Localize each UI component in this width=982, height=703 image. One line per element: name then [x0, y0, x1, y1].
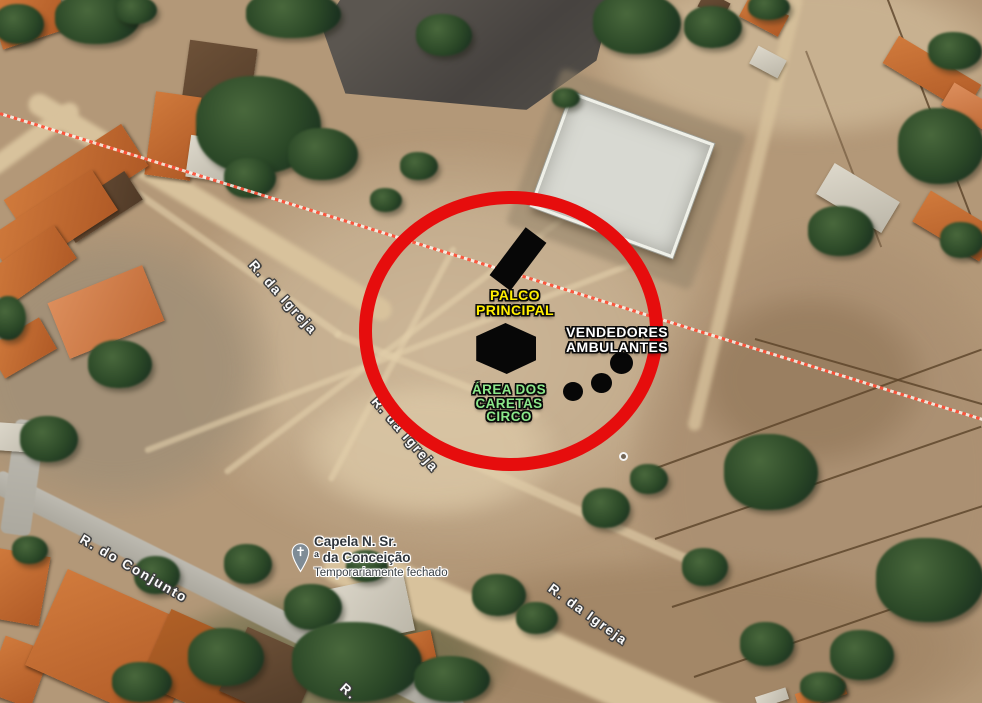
- small-ring-marker: [619, 452, 628, 461]
- vendedores-line2: AMBULANTES: [527, 340, 707, 355]
- tree-canopy: [800, 672, 846, 702]
- palco-line1: PALCO: [425, 288, 605, 303]
- tree-canopy: [740, 622, 794, 666]
- tree-canopy: [414, 656, 490, 702]
- palco-principal-label: PALCO PRINCIPAL: [425, 288, 605, 317]
- chapel-pin-icon[interactable]: [291, 542, 310, 580]
- tree-canopy: [724, 434, 818, 510]
- tree-canopy: [898, 108, 982, 184]
- palco-line2: PRINCIPAL: [425, 303, 605, 318]
- tree-canopy: [115, 0, 157, 24]
- tree-canopy: [112, 662, 172, 702]
- tree-canopy: [188, 628, 264, 686]
- satellite-map-canvas[interactable]: R. da Igreja R. da Igreja R. do Conjunto…: [0, 0, 982, 703]
- vendedores-line1: VENDEDORES: [527, 325, 707, 340]
- tree-canopy: [288, 128, 358, 180]
- chapel-label[interactable]: Capela N. Sr. ª da Conceição Temporariam…: [314, 534, 448, 580]
- tree-canopy: [684, 6, 742, 48]
- chapel-name-line1: Capela N. Sr.: [314, 534, 448, 550]
- tree-canopy: [12, 536, 48, 564]
- vendor-dot-marker: [591, 373, 612, 393]
- tree-canopy: [940, 222, 982, 258]
- tree-canopy: [582, 488, 630, 528]
- tree-canopy: [552, 88, 580, 108]
- caretas-line1: ÁREA DOS: [424, 383, 594, 397]
- tree-canopy: [224, 544, 272, 584]
- vendedores-ambulantes-label: VENDEDORES AMBULANTES: [527, 325, 707, 354]
- tree-canopy: [20, 416, 78, 462]
- tree-canopy: [876, 538, 982, 622]
- caretas-line2: CARETAS: [424, 397, 594, 411]
- tree-canopy: [808, 206, 874, 256]
- tree-canopy: [830, 630, 894, 680]
- chapel-status: Temporariamente fechado: [314, 566, 448, 580]
- caretas-line3: CIRCO: [424, 410, 594, 424]
- area-dos-caretas-label: ÁREA DOS CARETAS CIRCO: [424, 383, 594, 424]
- tree-canopy: [928, 32, 982, 70]
- tree-canopy: [88, 340, 152, 388]
- tree-canopy: [516, 602, 558, 634]
- tree-canopy: [630, 464, 668, 494]
- tree-canopy: [682, 548, 728, 586]
- chapel-name-line2: ª da Conceição: [314, 550, 448, 566]
- tree-canopy: [400, 152, 438, 180]
- vendor-dot-marker: [610, 352, 633, 374]
- tree-canopy: [416, 14, 472, 56]
- chapel-poi[interactable]: Capela N. Sr. ª da Conceição Temporariam…: [291, 534, 448, 580]
- tree-canopy: [370, 188, 402, 212]
